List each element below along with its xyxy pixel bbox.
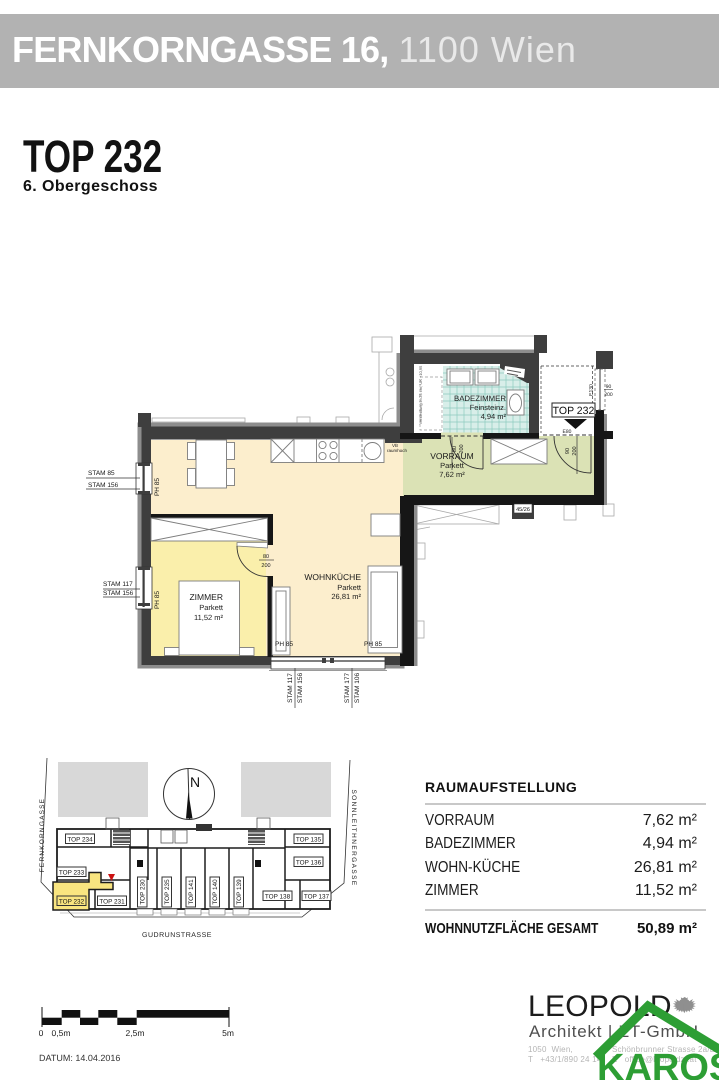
- svg-text:TOP 230: TOP 230: [140, 879, 147, 905]
- svg-text:TOP 136: TOP 136: [296, 860, 322, 867]
- svg-text:Parkett: Parkett: [199, 603, 224, 612]
- svg-text:TOP 234: TOP 234: [67, 837, 93, 844]
- svg-text:TOP 135: TOP 135: [296, 837, 322, 844]
- svg-text:200: 200: [459, 444, 465, 453]
- svg-text:STAM 156: STAM 156: [103, 590, 134, 597]
- svg-text:5m: 5m: [222, 1028, 234, 1038]
- svg-text:TOP 235: TOP 235: [164, 879, 171, 905]
- svg-text:90: 90: [565, 448, 571, 454]
- svg-text:STAM 117: STAM 117: [103, 581, 133, 588]
- svg-text:E80: E80: [563, 429, 572, 435]
- svg-text:PH 85: PH 85: [275, 641, 293, 648]
- svg-text:DATUM: 14.04.2016: DATUM: 14.04.2016: [39, 1053, 120, 1063]
- svg-text:7,62 m²: 7,62 m²: [439, 470, 465, 479]
- svg-text:FERNKORNGASSE: FERNKORNGASSE: [39, 798, 46, 872]
- svg-text:raumhoch: raumhoch: [387, 448, 408, 453]
- svg-text:26,81 m²: 26,81 m²: [331, 592, 361, 601]
- svg-text:200: 200: [604, 392, 613, 398]
- svg-text:Parkett: Parkett: [337, 583, 362, 592]
- svg-text:ZIMMER: ZIMMER: [189, 592, 223, 602]
- svg-text:GUDRUNSTRASSE: GUDRUNSTRASSE: [142, 932, 212, 939]
- svg-text:STAM 177: STAM 177: [344, 673, 351, 704]
- svg-text:90: 90: [606, 384, 612, 390]
- svg-text:80: 80: [263, 554, 269, 560]
- svg-text:KAROS: KAROS: [597, 1047, 719, 1080]
- svg-text:STAM 117: STAM 117: [287, 673, 294, 703]
- svg-text:SONNLEITHNERGASSE: SONNLEITHNERGASSE: [350, 789, 357, 886]
- svg-text:TOP 138: TOP 138: [265, 894, 291, 901]
- svg-text:0,5m: 0,5m: [52, 1028, 71, 1038]
- svg-text:2,5m: 2,5m: [126, 1028, 145, 1038]
- svg-text:STAM 156: STAM 156: [297, 673, 304, 704]
- svg-text:Feinsteinz.: Feinsteinz.: [470, 403, 506, 412]
- svg-text:TOP 141: TOP 141: [188, 879, 195, 905]
- svg-text:PH 85: PH 85: [364, 641, 382, 648]
- svg-text:TOP 232: TOP 232: [553, 405, 595, 417]
- svg-text:200: 200: [572, 446, 578, 455]
- svg-text:0: 0: [39, 1028, 44, 1038]
- svg-text:TOP 137: TOP 137: [304, 894, 330, 901]
- svg-text:BADEZIMMER: BADEZIMMER: [454, 394, 506, 403]
- svg-text:Verkleidung b=25 cm, UK +10,95: Verkleidung b=25 cm, UK +10,95: [418, 365, 423, 424]
- svg-text:N: N: [190, 774, 200, 790]
- svg-text:E130: E130: [589, 384, 595, 396]
- svg-text:STAM 85: STAM 85: [88, 470, 115, 477]
- svg-text:PH 85: PH 85: [154, 478, 161, 496]
- svg-text:TOP 140: TOP 140: [212, 879, 219, 905]
- svg-text:Parkett: Parkett: [440, 461, 465, 470]
- svg-text:4,94 m²: 4,94 m²: [481, 412, 507, 421]
- svg-text:STAM 156: STAM 156: [88, 482, 119, 489]
- svg-text:45/26: 45/26: [516, 507, 530, 513]
- svg-text:TOP 233: TOP 233: [59, 870, 85, 877]
- svg-text:STAM 106: STAM 106: [354, 673, 361, 704]
- svg-text:WOHNKÜCHE: WOHNKÜCHE: [304, 572, 361, 582]
- svg-text:PH 85: PH 85: [154, 591, 161, 609]
- svg-text:80: 80: [452, 446, 458, 452]
- svg-text:TOP 232: TOP 232: [59, 899, 85, 906]
- svg-text:TOP 231: TOP 231: [99, 899, 125, 906]
- svg-text:200: 200: [261, 563, 270, 569]
- svg-text:TOP 139: TOP 139: [236, 879, 243, 905]
- svg-text:11,52 m²: 11,52 m²: [194, 613, 224, 622]
